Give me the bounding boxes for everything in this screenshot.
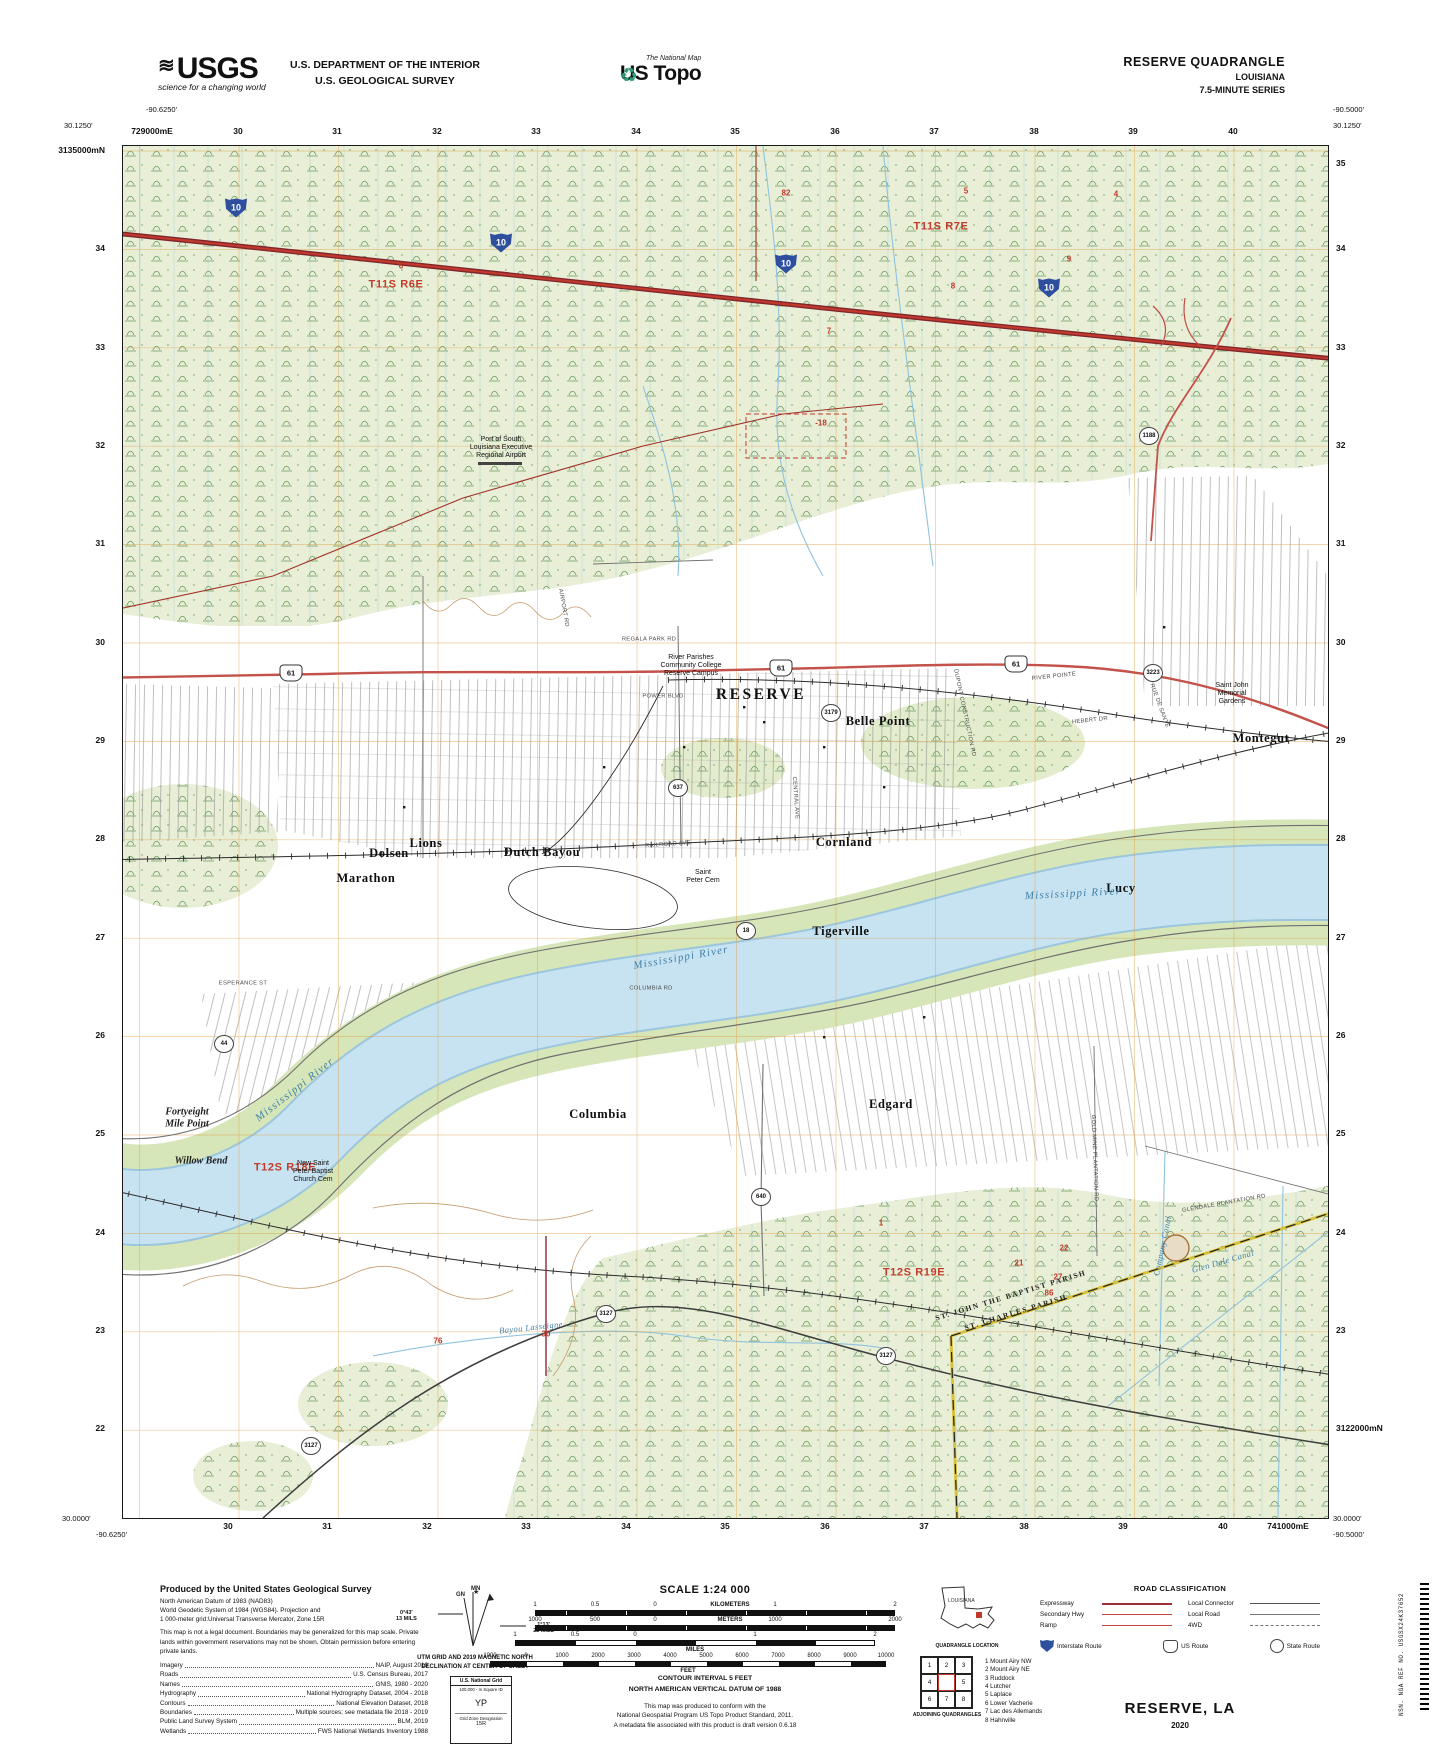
corner-top-left-lat: 30.1250' <box>64 121 93 130</box>
map-label: HEBERT DR <box>1072 716 1108 726</box>
road-class-sample <box>1102 1625 1172 1626</box>
utm-label: 31 <box>332 126 341 136</box>
map-canvas[interactable]: T11S R6ET11S R7ET12S R18ET12S R19ERESERV… <box>122 145 1329 1519</box>
state-route-shield-icon <box>1270 1639 1284 1653</box>
map-label: RUE DE SANTE <box>1148 683 1170 729</box>
map-label: Cornland <box>816 835 872 849</box>
map-label: POWER BLVD <box>642 694 683 701</box>
map-label: 21 <box>1015 1258 1024 1267</box>
map-label: 10 <box>490 234 512 253</box>
scale-tick: 2 <box>873 1632 876 1638</box>
adjoining-list-item: 6 Lower Vacherie <box>985 1700 1042 1708</box>
adjoining-grid: 1 2 3 4 5 6 7 8 <box>920 1656 973 1709</box>
adjoining-list-item: 4 Lutcher <box>985 1683 1042 1691</box>
scale-tick: 2000 <box>888 1617 901 1623</box>
map-label: 1188 <box>1139 427 1159 445</box>
utm-label: 28 <box>1336 833 1345 843</box>
road-class-row: Local Connector <box>1188 1598 1320 1609</box>
map-label: 3127 <box>596 1305 616 1323</box>
source-leader <box>198 1689 304 1696</box>
adj-cell-8: 8 <box>955 1691 972 1708</box>
svg-text:★: ★ <box>473 1588 479 1596</box>
road-class-label: Ramp <box>1040 1622 1102 1629</box>
km-bar <box>535 1610 895 1616</box>
utm-label: 33 <box>96 342 105 352</box>
road-class-label: 4WD <box>1188 1622 1250 1629</box>
road-class-row: Secondary Hwy <box>1040 1609 1172 1620</box>
utm-label: 33 <box>531 126 540 136</box>
utm-label: 33 <box>521 1521 530 1531</box>
dept-line2: U.S. GEOLOGICAL SURVEY <box>255 74 515 90</box>
quad-location-caption: QUADRANGLE LOCATION <box>932 1643 1002 1649</box>
road-class-sample <box>1102 1614 1172 1615</box>
usgs-wave-icon: ≋ <box>158 55 175 77</box>
mi-ticks: 10.5012 <box>515 1632 875 1640</box>
usgs-tagline: science for a changing world <box>158 82 266 92</box>
utm-label: 38 <box>1029 126 1038 136</box>
scale-tick: 9000 <box>843 1653 856 1659</box>
map-label: 3223 <box>1143 664 1163 682</box>
data-source-row: Boundaries Multiple sources; see metadat… <box>160 1708 428 1717</box>
sheet-year: 2020 <box>1040 1721 1320 1730</box>
quadrangle-location: LOUISIANA QUADRANGLE LOCATION <box>932 1586 1002 1649</box>
datum-line-2: World Geodetic System of 1984 (WGS84). P… <box>160 1606 428 1615</box>
map-label: ESPERANCE ST <box>219 981 267 988</box>
adj-cell-1: 1 <box>921 1657 938 1674</box>
corner-bottom-left-lat: 30.0000' <box>62 1514 91 1523</box>
map-label: 3179 <box>821 704 841 722</box>
source-leader <box>188 1727 316 1734</box>
louisiana-outline: LOUISIANA <box>938 1586 996 1636</box>
scale-tick: KILOMETERS <box>710 1602 749 1608</box>
utm-label: 29 <box>96 735 105 745</box>
scale-tick: 5000 <box>699 1653 712 1659</box>
road-class-label: Secondary Hwy <box>1040 1611 1102 1618</box>
mi-bar <box>515 1640 875 1646</box>
scale-tick: 1000 <box>768 1617 781 1623</box>
utm-label: 39 <box>1128 126 1137 136</box>
scale-tick: 3000 <box>627 1653 640 1659</box>
adjoining-caption: ADJOINING QUADRANGLES <box>902 1712 992 1718</box>
utm-label: 31 <box>1336 538 1345 548</box>
map-label: 8 <box>951 281 955 290</box>
source-key: Wetlands <box>160 1727 186 1736</box>
scale-tick: 0 <box>633 1632 636 1638</box>
scale-title: SCALE 1:24 000 <box>480 1584 930 1596</box>
utm-label: 35 <box>1336 158 1345 168</box>
scale-tick: 2000 <box>591 1653 604 1659</box>
map-label: Glen Dale Canal <box>1191 1248 1255 1275</box>
source-key: Hydrography <box>160 1689 196 1698</box>
map-label: 22 <box>1060 1243 1069 1252</box>
utm-label: 24 <box>96 1227 105 1237</box>
utm-label: 32 <box>432 126 441 136</box>
map-label: 637 <box>668 779 688 797</box>
utm-label: 32 <box>1336 440 1345 450</box>
source-key: Imagery <box>160 1661 183 1670</box>
map-label: -18 <box>815 418 827 427</box>
map-label: T11S R7E <box>914 221 969 234</box>
map-label: 5 <box>964 186 968 195</box>
data-source-row: Contours National Elevation Dataset, 201… <box>160 1699 428 1708</box>
map-label: 27 <box>1054 1272 1063 1281</box>
utm-label: 3135000mN <box>58 145 105 155</box>
barcode <box>1420 1580 1429 1710</box>
map-label: Saint John Memorial Gardens <box>1215 682 1248 706</box>
source-key: Contours <box>160 1699 186 1708</box>
map-label: Montegut <box>1233 731 1290 745</box>
usgs-topo-sheet: ≋USGS science for a changing world U.S. … <box>0 0 1445 1746</box>
road-class-row: Ramp <box>1040 1620 1172 1631</box>
adj-cell-2: 2 <box>938 1657 955 1674</box>
road-class-row: Expressway <box>1040 1598 1172 1609</box>
map-label: Dolsen <box>369 846 409 860</box>
usgs-logo-text: USGS <box>177 52 258 85</box>
map-label: 61 <box>280 665 303 682</box>
map-label: 82 <box>782 188 791 197</box>
map-label: Mississippi River <box>253 1055 337 1124</box>
road-class-row: 4WD <box>1188 1620 1320 1631</box>
utm-label: 33 <box>1336 342 1345 352</box>
adj-cell-7: 7 <box>938 1691 955 1708</box>
utm-label: 31 <box>322 1521 331 1531</box>
scale-tick: 1000 <box>528 1617 541 1623</box>
utm-label: 26 <box>1336 1030 1345 1040</box>
scale-block: SCALE 1:24 000 10.50KILOMETERS12 1000500… <box>480 1584 930 1730</box>
scale-tick: 7000 <box>771 1653 784 1659</box>
utm-label: 34 <box>96 243 105 253</box>
source-leader <box>185 1661 374 1668</box>
scale-tick: 8000 <box>807 1653 820 1659</box>
map-label: T12S R18E <box>254 1162 316 1175</box>
adjoining-list-item: 5 Laplace <box>985 1691 1042 1699</box>
sheet-name: RESERVE, LA <box>1040 1700 1320 1717</box>
adjoining-list: 1 Mount Airy NW2 Mount Airy NE3 Ruddock4… <box>985 1658 1042 1725</box>
map-label: 10 <box>775 255 797 274</box>
map-label: Lucy <box>1106 881 1136 895</box>
road-class-row: Local Road <box>1188 1609 1320 1620</box>
quad-name: RESERVE QUADRANGLE <box>1123 55 1285 69</box>
utm-label: 32 <box>96 440 105 450</box>
utm-label: 34 <box>621 1521 630 1531</box>
map-label: Dutch Bayou <box>504 845 580 859</box>
map-label: Mississippi River <box>632 943 729 972</box>
map-label: ST. JOHN THE BAPTIST PARISH <box>934 1269 1087 1323</box>
map-label: Columbia <box>569 1107 627 1121</box>
m-bar <box>535 1625 895 1631</box>
utm-label: 729000mE <box>131 126 173 136</box>
scale-tick: 4000 <box>663 1653 676 1659</box>
map-label: DUPONT CONSTRUCTION RD <box>951 669 976 758</box>
utm-label: 36 <box>820 1521 829 1531</box>
us-route-shield-icon <box>1163 1640 1178 1653</box>
source-leader <box>182 1680 374 1687</box>
map-label: GLENDALE PLANTATION RD <box>1182 1193 1267 1214</box>
map-label: 44 <box>214 1035 234 1053</box>
utm-label: 37 <box>919 1521 928 1531</box>
svg-text:GN: GN <box>456 1592 465 1598</box>
legend-us-route: US Route <box>1163 1640 1208 1653</box>
utm-label: 37 <box>929 126 938 136</box>
map-label: Port of South Louisiana Executive Region… <box>470 436 532 460</box>
scale-tick: 1000 <box>483 1653 496 1659</box>
dept-line1: U.S. DEPARTMENT OF THE INTERIOR <box>255 58 515 74</box>
road-class-sample <box>1102 1603 1172 1605</box>
quad-state: LOUISIANA <box>1123 72 1285 82</box>
map-label: 61 <box>1005 656 1028 673</box>
corner-top-right-lat: 30.1250' <box>1333 121 1362 130</box>
utm-label: 36 <box>830 126 839 136</box>
adj-cell-5: 5 <box>955 1674 972 1691</box>
map-label: RIVER POINTE <box>1032 671 1077 682</box>
ft-bar <box>490 1661 886 1667</box>
adjoining-list-item: 8 Hahnville <box>985 1717 1042 1725</box>
map-label: 4 <box>1114 189 1118 198</box>
map-labels: T11S R6ET11S R7ET12S R18ET12S R19ERESERV… <box>123 146 1328 1518</box>
utm-label: 27 <box>96 932 105 942</box>
road-class-sample <box>1250 1625 1320 1626</box>
map-label: 10 <box>225 199 247 218</box>
road-class-label: Local Connector <box>1188 1600 1250 1607</box>
map-label: Lions <box>410 836 443 850</box>
map-label: Saint Peter Cem <box>686 869 719 885</box>
utm-label: 741000mE <box>1267 1521 1309 1531</box>
utm-label: 25 <box>96 1128 105 1138</box>
source-leader <box>239 1717 396 1724</box>
map-label: Marathon <box>337 871 396 885</box>
scale-tick: 0 <box>653 1602 656 1608</box>
scale-tick: 10000 <box>878 1653 895 1659</box>
legend-interstate: Interstate Route <box>1040 1640 1102 1652</box>
adjoining-list-item: 3 Ruddock <box>985 1675 1042 1683</box>
map-label: CENTRAL AVE <box>790 777 800 820</box>
national-map-icon: ♻ <box>620 63 638 88</box>
adj-cell-4: 4 <box>921 1674 938 1691</box>
utm-label: 23 <box>1336 1325 1345 1335</box>
corner-top-right-lon: -90.5000' <box>1333 105 1364 114</box>
map-label: RESERVE <box>716 686 806 704</box>
scale-tick: 500 <box>590 1617 600 1623</box>
catalog-id-text: NSN. NGA REF NO. USGSX24K37652 <box>1398 1593 1405 1716</box>
map-label: 7 <box>827 326 831 335</box>
map-label: 3127 <box>301 1437 321 1455</box>
source-key: Boundaries <box>160 1708 192 1717</box>
national-map-small: The National Map <box>646 55 760 62</box>
map-label: 76 <box>434 1336 443 1345</box>
scale-tick: 6000 <box>735 1653 748 1659</box>
road-class-label: Local Road <box>1188 1611 1250 1618</box>
scale-tick: 1000 <box>555 1653 568 1659</box>
road-classification: ROAD CLASSIFICATION Expressway Secondary… <box>1040 1584 1320 1653</box>
map-label: Bayou Lasseigne <box>499 1320 564 1336</box>
utm-label: 24 <box>1336 1227 1345 1237</box>
quad-location-marker <box>976 1612 982 1618</box>
national-map-logo: ♻ The National Map US Topo <box>620 55 760 86</box>
corner-bottom-left-lon: -90.6250' <box>96 1530 127 1539</box>
standard-note: This map was produced to conform with th… <box>480 1702 930 1730</box>
km-ticks: 10.50KILOMETERS12 <box>535 1602 895 1610</box>
utm-label: 3122000mN <box>1336 1423 1383 1433</box>
scale-tick: 1 <box>773 1602 776 1608</box>
utm-label: 23 <box>96 1325 105 1335</box>
map-label: REGALA PARK RD <box>622 637 676 644</box>
quad-title-block: RESERVE QUADRANGLE LOUISIANA 7.5-MINUTE … <box>1123 55 1285 95</box>
map-label: 640 <box>751 1188 771 1206</box>
department-heading: U.S. DEPARTMENT OF THE INTERIOR U.S. GEO… <box>255 58 515 90</box>
map-label: T11S R6E <box>369 279 424 292</box>
source-value: Multiple sources; see metadata file 2018… <box>296 1708 428 1717</box>
data-source-row: Wetlands FWS National Wetlands Inventory… <box>160 1727 428 1736</box>
map-label: ST. CHARLES PARISH <box>964 1293 1069 1333</box>
map-label: 61 <box>770 660 793 677</box>
map-label: GOLD MINE PLANTATION RD <box>1089 1115 1099 1202</box>
map-label: Willow Bend <box>175 1155 228 1167</box>
scale-tick: 1 <box>533 1602 536 1608</box>
utm-label: 25 <box>1336 1128 1345 1138</box>
adjoining-list-item: 7 Lac des Allemands <box>985 1708 1042 1716</box>
corner-bottom-right-lat: 30.0000' <box>1333 1514 1362 1523</box>
source-value: National Hydrography Dataset, 2004 - 201… <box>307 1689 428 1698</box>
adj-cell-6: 6 <box>921 1691 938 1708</box>
map-label: COLUMBIA RD <box>629 986 672 993</box>
sheet-title: RESERVE, LA 2020 <box>1040 1700 1320 1730</box>
adjoining-list-item: 2 Mount Airy NE <box>985 1666 1042 1674</box>
road-class-sample <box>1250 1603 1320 1604</box>
corner-bottom-right-lon: -90.5000' <box>1333 1530 1364 1539</box>
map-label: T12S R19E <box>883 1267 945 1280</box>
source-key: Public Land Survey System <box>160 1717 237 1726</box>
utm-label: 26 <box>96 1030 105 1040</box>
map-label: River Parishes Community College Reserve… <box>660 654 721 678</box>
utm-label: 28 <box>96 833 105 843</box>
adj-cell-center <box>938 1674 955 1691</box>
data-source-row: Names GNIS, 1980 - 2020 <box>160 1680 428 1689</box>
utm-label: 40 <box>1228 126 1237 136</box>
source-value: BLM, 2019 <box>398 1717 428 1726</box>
map-label: Company Canal <box>1152 1215 1174 1276</box>
utm-label: 30 <box>223 1521 232 1531</box>
map-label: Belle Point <box>846 714 911 728</box>
scale-tick: 0 <box>653 1617 656 1623</box>
map-label: Mississippi River <box>1024 885 1121 903</box>
quad-series: 7.5-MINUTE SERIES <box>1123 85 1285 95</box>
utm-label: 38 <box>1019 1521 1028 1531</box>
data-sources: Imagery NAIP, August 2019 Roads U.S. Cen… <box>160 1661 428 1737</box>
source-leader <box>180 1670 351 1677</box>
miles-word: MILES <box>515 1647 875 1653</box>
utm-label: 34 <box>631 126 640 136</box>
utm-label: 30 <box>1336 637 1345 647</box>
road-class-sample <box>1250 1614 1320 1615</box>
scale-tick: 0.5 <box>591 1602 599 1608</box>
map-label: Edgard <box>869 1097 913 1111</box>
m-ticks: 10005000METERS10002000 <box>535 1617 895 1625</box>
map-label: 86 <box>1045 1288 1054 1297</box>
utm-label: 32 <box>422 1521 431 1531</box>
feet-word: FEET <box>490 1668 886 1674</box>
map-label: Tigerville <box>812 924 869 938</box>
adjoining-quadrangles: 1 2 3 4 5 6 7 8 ADJOINING QUADRANGLES <box>920 1656 992 1718</box>
usgs-logo: ≋USGS science for a changing world <box>158 52 266 92</box>
utm-label: 34 <box>1336 243 1345 253</box>
source-value: FWS National Wetlands Inventory 1988 <box>318 1727 428 1736</box>
utm-label: 40 <box>1218 1521 1227 1531</box>
louisiana-label: LOUISIANA <box>948 1598 975 1604</box>
map-label: 10 <box>1038 279 1060 298</box>
source-key: Names <box>160 1680 180 1689</box>
ft-ticks: 1000010002000300040005000600070008000900… <box>490 1653 886 1661</box>
contour-note: CONTOUR INTERVAL 5 FEETNORTH AMERICAN VE… <box>480 1674 930 1696</box>
map-label: AIRPORT RD <box>556 588 569 627</box>
source-key: Roads <box>160 1670 178 1679</box>
source-leader <box>194 1708 294 1715</box>
interstate-shield-icon <box>1040 1640 1054 1652</box>
utm-label: 35 <box>730 126 739 136</box>
utm-label: 30 <box>233 126 242 136</box>
road-class-title: ROAD CLASSIFICATION <box>1040 1584 1320 1593</box>
legal-note: This map is not a legal document. Bounda… <box>160 1628 428 1655</box>
source-value: National Elevation Dataset, 2018 <box>336 1699 428 1708</box>
road-class-label: Expressway <box>1040 1600 1102 1607</box>
map-label: RAILROAD AVE <box>645 840 691 850</box>
utm-label: 31 <box>96 538 105 548</box>
scale-tick: 1 <box>513 1632 516 1638</box>
scale-tick: METERS <box>717 1617 742 1623</box>
legend-state-route: State Route <box>1270 1639 1320 1653</box>
map-label: 18 <box>736 922 756 940</box>
scale-tick: 0.5 <box>571 1632 579 1638</box>
utm-label: 30 <box>96 637 105 647</box>
utm-label: 35 <box>720 1521 729 1531</box>
map-label: Fortyeight Mile Point <box>165 1107 209 1130</box>
utm-label: 39 <box>1118 1521 1127 1531</box>
produced-title: Produced by the United States Geological… <box>160 1584 428 1594</box>
source-value: GNIS, 1980 - 2020 <box>375 1680 428 1689</box>
utm-label: 29 <box>1336 735 1345 745</box>
gn-degrees: 0°43'13 MILS <box>396 1610 417 1622</box>
data-source-row: Public Land Survey System BLM, 2019 <box>160 1717 428 1726</box>
map-label: 1 <box>879 1218 883 1227</box>
adjoining-list-item: 1 Mount Airy NW <box>985 1658 1042 1666</box>
road-class-left: Expressway Secondary Hwy Ramp <box>1040 1598 1172 1631</box>
road-class-right: Local Connector Local Road 4WD <box>1188 1598 1320 1631</box>
map-label: 3127 <box>876 1347 896 1365</box>
map-label: New Saint Peter Baptist Church Cem <box>293 1160 333 1184</box>
utm-label: 22 <box>96 1423 105 1433</box>
map-label: 6 <box>399 261 403 270</box>
scale-tick: 1 <box>753 1632 756 1638</box>
utm-label: 27 <box>1336 932 1345 942</box>
data-source-row: Hydrography National Hydrography Dataset… <box>160 1689 428 1698</box>
map-label: 9 <box>1067 254 1071 263</box>
adj-cell-3: 3 <box>955 1657 972 1674</box>
map-label: 30 <box>542 1329 551 1338</box>
corner-top-left-lon: -90.6250' <box>146 105 177 114</box>
national-map-big: US Topo <box>620 62 760 86</box>
source-leader <box>188 1699 335 1706</box>
datum-line-1: North American Datum of 1983 (NAD83) <box>160 1597 428 1606</box>
scale-tick: 0 <box>524 1653 527 1659</box>
datum-line-3: 1 000-meter grid:Universal Transverse Me… <box>160 1615 428 1624</box>
scale-tick: 2 <box>893 1602 896 1608</box>
